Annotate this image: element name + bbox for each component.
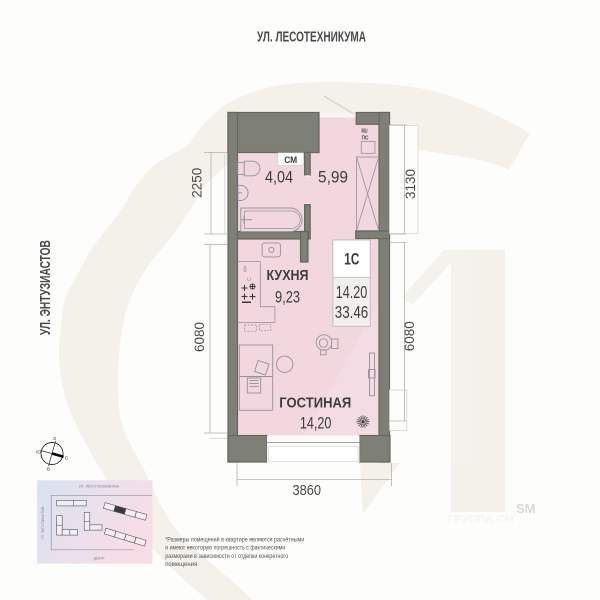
svg-text:*Размеры помещений в квартире: *Размеры помещений в квартире являются р…	[165, 536, 304, 544]
svg-text:5,99: 5,99	[318, 168, 348, 187]
svg-text:6080: 6080	[191, 322, 207, 352]
svg-text:З: З	[53, 436, 56, 441]
svg-text:помещения: помещения	[165, 561, 198, 568]
svg-text:размерами в зависимости от отд: размерами в зависимости от отделки конкр…	[165, 553, 288, 560]
svg-text:В: В	[47, 467, 50, 472]
svg-text:СМ: СМ	[284, 155, 297, 165]
svg-text:и имеют некоторую погрешность: и имеют некоторую погрешность с фактичес…	[165, 545, 285, 552]
svg-text:С: С	[247, 277, 253, 281]
svg-text:9,23: 9,23	[275, 288, 300, 307]
svg-text:ДВОР: ДВОР	[93, 556, 104, 561]
svg-text:ДШ: ДШ	[242, 265, 247, 272]
svg-text:1С: 1С	[344, 251, 359, 269]
svg-text:14.20: 14.20	[336, 282, 368, 302]
svg-text:6080: 6080	[401, 321, 417, 351]
svg-text:УЛ. ЭНТУЗИАСТОВ: УЛ. ЭНТУЗИАСТОВ	[41, 506, 45, 539]
svg-text:33.46: 33.46	[335, 302, 369, 322]
svg-text:ГРУППА СМ: ГРУППА СМ	[448, 514, 514, 526]
svg-text:3860: 3860	[293, 482, 322, 499]
svg-text:14,20: 14,20	[300, 414, 332, 433]
svg-text:4,04: 4,04	[265, 168, 293, 187]
svg-text:SM: SM	[516, 501, 536, 516]
svg-text:УЛ. ЛЕСОТЕХНИКУМА: УЛ. ЛЕСОТЕХНИКУМА	[79, 485, 120, 489]
svg-text:УЛ. ЛЕСОТЕХНИКУМА: УЛ. ЛЕСОТЕХНИКУМА	[257, 30, 366, 46]
svg-text:ВШ: ВШ	[362, 129, 368, 135]
svg-text:Ю: Ю	[36, 450, 41, 455]
svg-text:2250: 2250	[188, 168, 204, 198]
svg-text:КУХНЯ: КУХНЯ	[267, 268, 309, 284]
svg-text:ГОСТИНАЯ: ГОСТИНАЯ	[279, 396, 351, 412]
svg-text:УЛ. ЭНТУЗИАСТОВ: УЛ. ЭНТУЗИАСТОВ	[38, 240, 54, 335]
svg-text:3130: 3130	[402, 169, 418, 199]
svg-text:ПС: ПС	[362, 135, 369, 141]
